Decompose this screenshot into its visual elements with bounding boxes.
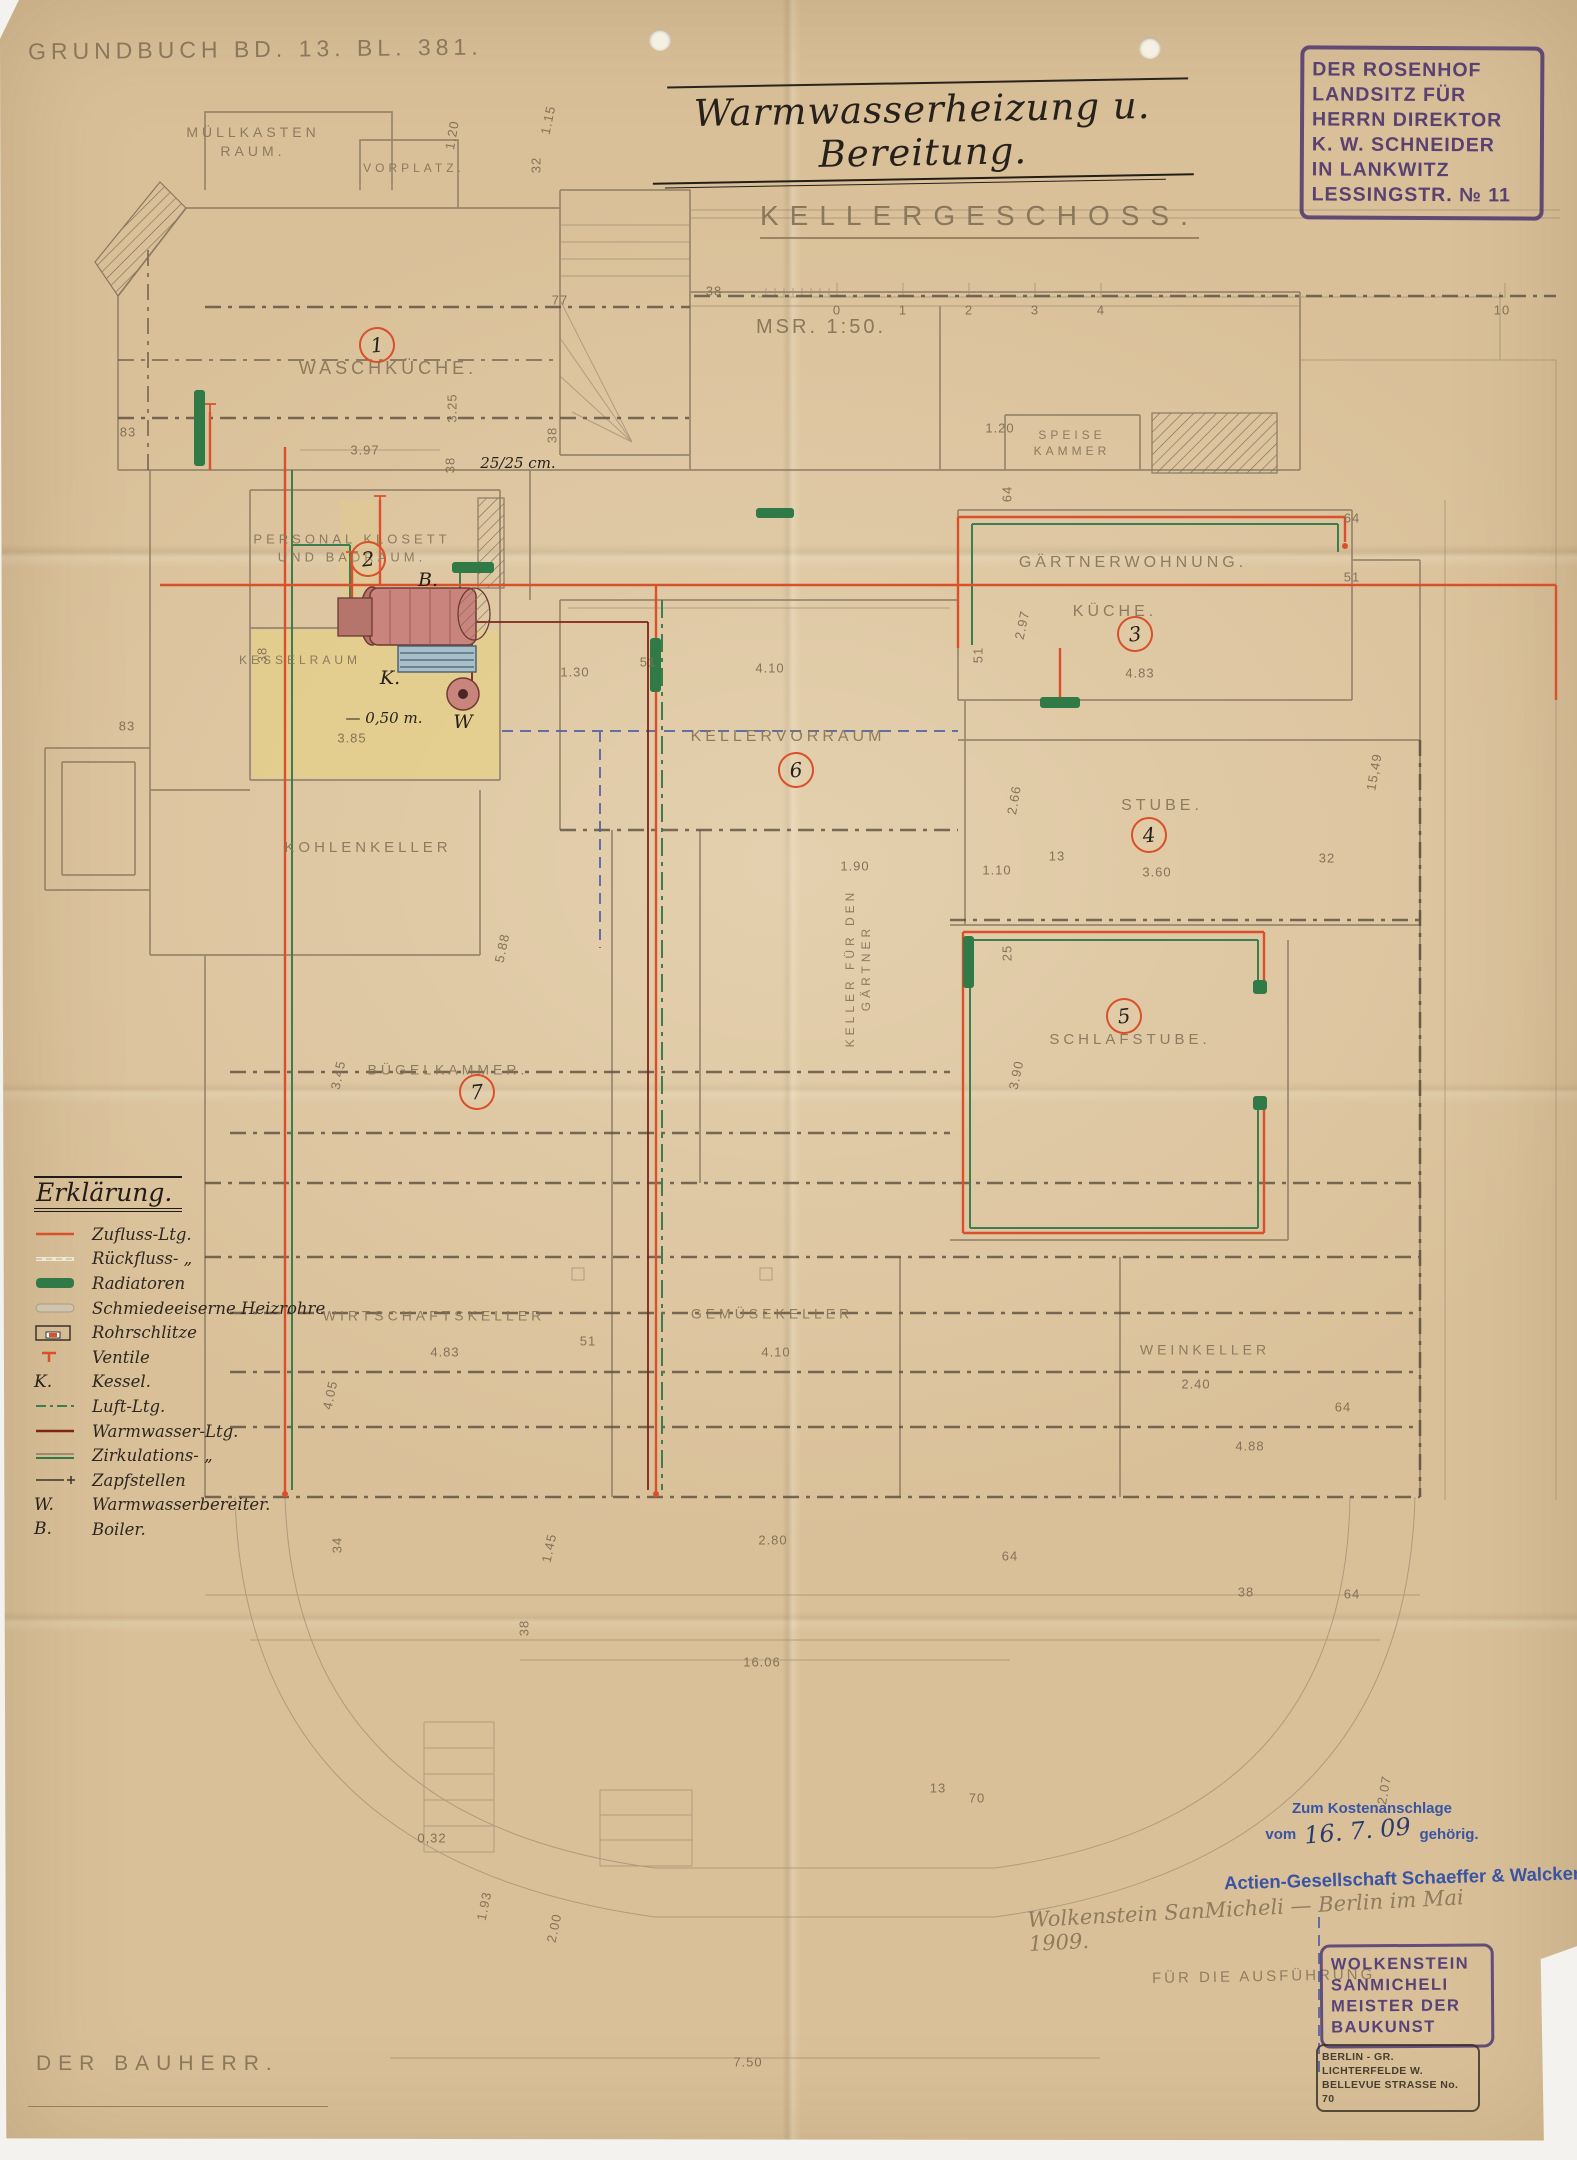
legend-label: Schmiedeeiserne Heizrohre <box>92 1299 325 1318</box>
legend-row: Luft-Ltg. <box>34 1394 334 1419</box>
scale-label: Msr. 1:50. <box>756 316 886 339</box>
legend-row: W.Warmwasserbereiter. <box>34 1493 334 1518</box>
legend-items: Zufluss-Ltg.Rückfluss- „RadiatorenSchmie… <box>34 1222 334 1542</box>
dimension-label: 3 <box>1031 303 1039 318</box>
dimension-label: 0 <box>833 303 841 318</box>
cost-estimate-date: 16. 7. 09 <box>1299 1812 1416 1850</box>
legend-symbol-supply-line <box>34 1225 92 1243</box>
dimension-label: 51 <box>1344 570 1360 585</box>
legend-label: Radiatoren <box>92 1274 185 1293</box>
legend-label: Luft-Ltg. <box>92 1397 165 1416</box>
dimension-label: 1.20 <box>985 421 1014 436</box>
bauherr-label: Der Bauherr. <box>36 2052 279 2076</box>
stamp-line: WOLKENSTEIN <box>1331 1953 1489 1975</box>
dimension-label: 1.90 <box>840 859 869 874</box>
address-stamp: BERLIN - GR. LICHTERFELDE W.BELLEVUE STR… <box>1316 2044 1480 2112</box>
dimension-label: 38 <box>517 1620 532 1636</box>
dimension-label: 64 <box>1344 511 1360 526</box>
dimension-label: 51 <box>971 647 986 663</box>
drawing-sheet: Grundbuch Bd. 13. Bl. 381. Warmwasserhei… <box>0 0 1577 2160</box>
heater-label: W <box>453 711 473 733</box>
dimension-label: 1.30 <box>560 665 589 680</box>
legend-row: Rückfluss- „ <box>34 1247 334 1272</box>
legend-symbol-letter: K. <box>34 1372 92 1392</box>
cost-estimate-gehoerig: gehörig. <box>1419 1826 1478 1843</box>
legend-label: Zufluss-Ltg. <box>92 1225 192 1244</box>
dimension-label: 4.83 <box>1125 666 1154 681</box>
dimension-label: 4.88 <box>1235 1439 1264 1454</box>
stamp-line: BERLIN - GR. LICHTERFELDE W. <box>1322 2050 1474 2078</box>
dimension-label: 70 <box>969 1791 985 1806</box>
cost-estimate-stamp: Zum Kostenanschlage vom 16. 7. 09 gehöri… <box>1262 1800 1482 1845</box>
dimension-label: 0,32 <box>417 1831 446 1846</box>
dimension-label: 3.25 <box>445 393 460 422</box>
legend: Erklärung. Zufluss-Ltg.Rückfluss- „Radia… <box>34 1176 334 1542</box>
room-label: SPEISE KAMMER <box>1034 427 1111 459</box>
stamp-line: DER ROSENHOF <box>1312 57 1536 83</box>
legend-row: Zufluss-Ltg. <box>34 1222 334 1247</box>
legend-symbol-return-line <box>34 1250 92 1268</box>
legend-row: Rohrschlitze <box>34 1320 334 1345</box>
dimension-label: 16.06 <box>743 1655 781 1670</box>
legend-title: Erklärung. <box>34 1176 182 1212</box>
legend-label: Warmwasserbereiter. <box>92 1495 270 1514</box>
dimension-label: 7.50 <box>733 2055 762 2070</box>
grundbuch-note: Grundbuch Bd. 13. Bl. 381. <box>28 34 483 66</box>
dimension-label: 4.10 <box>755 661 784 676</box>
sheet-title: Warmwasserheizung u. Bereitung. <box>649 81 1196 182</box>
stamp-line: LANDSITZ FÜR <box>1312 82 1536 108</box>
room-label: GÄRTNERWOHNUNG. <box>1019 552 1247 574</box>
legend-row: B.Boiler. <box>34 1517 334 1542</box>
dimension-label: 38 <box>706 284 722 299</box>
stamp-line: K. W. SCHNEIDER <box>1312 132 1536 158</box>
dimension-label: 3.97 <box>350 443 379 458</box>
cost-estimate-vom: vom <box>1265 1826 1296 1843</box>
room-label: KELLERVORRAUM <box>691 726 886 748</box>
room-label: BÜGELKAMMER. <box>368 1061 529 1080</box>
dimension-label: 64 <box>1000 486 1015 502</box>
stamp-line: SANMICHELI <box>1331 1974 1489 1996</box>
legend-symbol-letter: W. <box>34 1495 92 1515</box>
dimension-label: 64 <box>1002 1549 1018 1564</box>
stamp-line: LESSINGSTR. № 11 <box>1312 182 1536 208</box>
legend-label: Kessel. <box>92 1372 151 1391</box>
cost-estimate-line1: Zum Kostenanschlage <box>1262 1800 1482 1817</box>
dimension-label: 38 <box>545 427 560 443</box>
legend-symbol-radiator <box>34 1274 92 1292</box>
dimension-label: 51 <box>640 655 656 670</box>
dimension-label: 1.10 <box>982 863 1011 878</box>
room-label: WASCHKÜCHE. <box>299 356 477 380</box>
dimension-label: 10 <box>1494 303 1510 318</box>
dimension-label: 3.60 <box>1142 865 1171 880</box>
stamp-line: IN LANKWITZ <box>1312 157 1536 183</box>
builder-stamp: WOLKENSTEINSANMICHELIMEISTER DERBAUKUNST <box>1320 1943 1495 2048</box>
legend-row: Schmiedeeiserne Heizrohre <box>34 1296 334 1321</box>
driveway-curves <box>235 1497 1415 1917</box>
paper-background: Grundbuch Bd. 13. Bl. 381. Warmwasserhei… <box>0 0 1577 2160</box>
legend-row: Radiatoren <box>34 1271 334 1296</box>
room-label: KOHLENKELLER <box>284 838 451 858</box>
legend-symbol-tap-points <box>34 1471 92 1489</box>
ink-annotation: — 0,50 m. <box>346 709 423 727</box>
signature-line <box>28 2106 328 2107</box>
legend-label: Rückfluss- „ <box>92 1249 192 1268</box>
legend-symbol-letter: B. <box>34 1519 92 1539</box>
dimension-label: 38 <box>443 457 458 473</box>
dimension-label: 32 <box>1319 851 1335 866</box>
legend-symbol-pipe-slot <box>34 1324 92 1342</box>
dimension-label: 51 <box>580 1334 596 1349</box>
dimension-label: 13 <box>1049 849 1065 864</box>
punch-hole <box>649 29 671 51</box>
dimension-label: 4 <box>1097 303 1105 318</box>
dimension-label: 38 <box>1238 1585 1254 1600</box>
legend-label: Boiler. <box>92 1520 146 1539</box>
dimension-label: 13 <box>930 1781 946 1796</box>
room-label: GEMÜSEKELLER <box>691 1305 853 1324</box>
legend-row: Ventile <box>34 1345 334 1370</box>
floor-heading: Kellergeschoss. <box>760 200 1199 239</box>
legend-label: Zapfstellen <box>92 1471 186 1490</box>
room-label: STUBE. <box>1121 795 1203 817</box>
dimension-label: 3.85 <box>337 731 366 746</box>
stamp-line: BAUKUNST <box>1331 2016 1489 2038</box>
dimension-label: 64 <box>1335 1400 1351 1415</box>
dimension-label: 77 <box>552 293 568 308</box>
stamp-line: MEISTER DER <box>1331 1995 1489 2017</box>
legend-label: Zirkulations- „ <box>92 1446 213 1465</box>
dimension-label: 38 <box>255 647 270 663</box>
kessel-body <box>398 646 476 672</box>
dimension-label: 4.83 <box>430 1345 459 1360</box>
room-label: MÜLLKASTEN RAUM. <box>186 123 319 161</box>
room-label: WIRTSCHAFTSKELLER <box>323 1307 546 1326</box>
dimension-label: 2 <box>965 303 973 318</box>
dimension-label: 4.10 <box>761 1345 790 1360</box>
kessel-label: K. <box>380 667 400 689</box>
boiler-label: B. <box>418 569 438 591</box>
room-label: KELLER FÜR DEN GÄRTNER <box>842 889 874 1048</box>
dimension-label: 64 <box>1344 1587 1360 1602</box>
sheet-title-block: Warmwasserheizung u. Bereitung. <box>649 77 1196 188</box>
owner-stamp: DER ROSENHOFLANDSITZ FÜRHERRN DIREKTORK.… <box>1300 45 1545 220</box>
legend-row: Warmwasser-Ltg. <box>34 1419 334 1444</box>
room-label: VORPLATZ. <box>363 160 465 176</box>
stamp-line: BELLEVUE STRASSE No. 70 <box>1322 2078 1474 2106</box>
dimension-label: 1 <box>899 303 907 318</box>
room-label: WEINKELLER <box>1140 1341 1270 1360</box>
legend-symbol-circulation-line <box>34 1447 92 1465</box>
legend-row: K.Kessel. <box>34 1370 334 1395</box>
legend-row: Zirkulations- „ <box>34 1443 334 1468</box>
legend-label: Rohrschlitze <box>92 1323 197 1342</box>
dimension-label: 2.80 <box>758 1533 787 1548</box>
dimension-label: 83 <box>120 425 136 440</box>
legend-symbol-valve <box>34 1348 92 1366</box>
legend-symbol-air-line <box>34 1397 92 1415</box>
legend-symbol-hot-water-line <box>34 1422 92 1440</box>
punch-hole <box>1139 37 1161 59</box>
ink-annotation: 25/25 cm. <box>480 454 555 472</box>
stair-winders <box>560 300 632 442</box>
legend-label: Warmwasser-Ltg. <box>92 1422 238 1441</box>
legend-row: Zapfstellen <box>34 1468 334 1493</box>
dimension-label: 2.40 <box>1181 1377 1210 1392</box>
dimension-label: 32 <box>529 157 544 173</box>
legend-symbol-wrought-iron-pipe <box>34 1299 92 1317</box>
dimension-label: 83 <box>119 719 135 734</box>
stamp-line: HERRN DIREKTOR <box>1312 107 1536 133</box>
dimension-label: 25 <box>1000 945 1015 961</box>
legend-label: Ventile <box>92 1348 150 1367</box>
hatched-chimney <box>95 182 1277 588</box>
